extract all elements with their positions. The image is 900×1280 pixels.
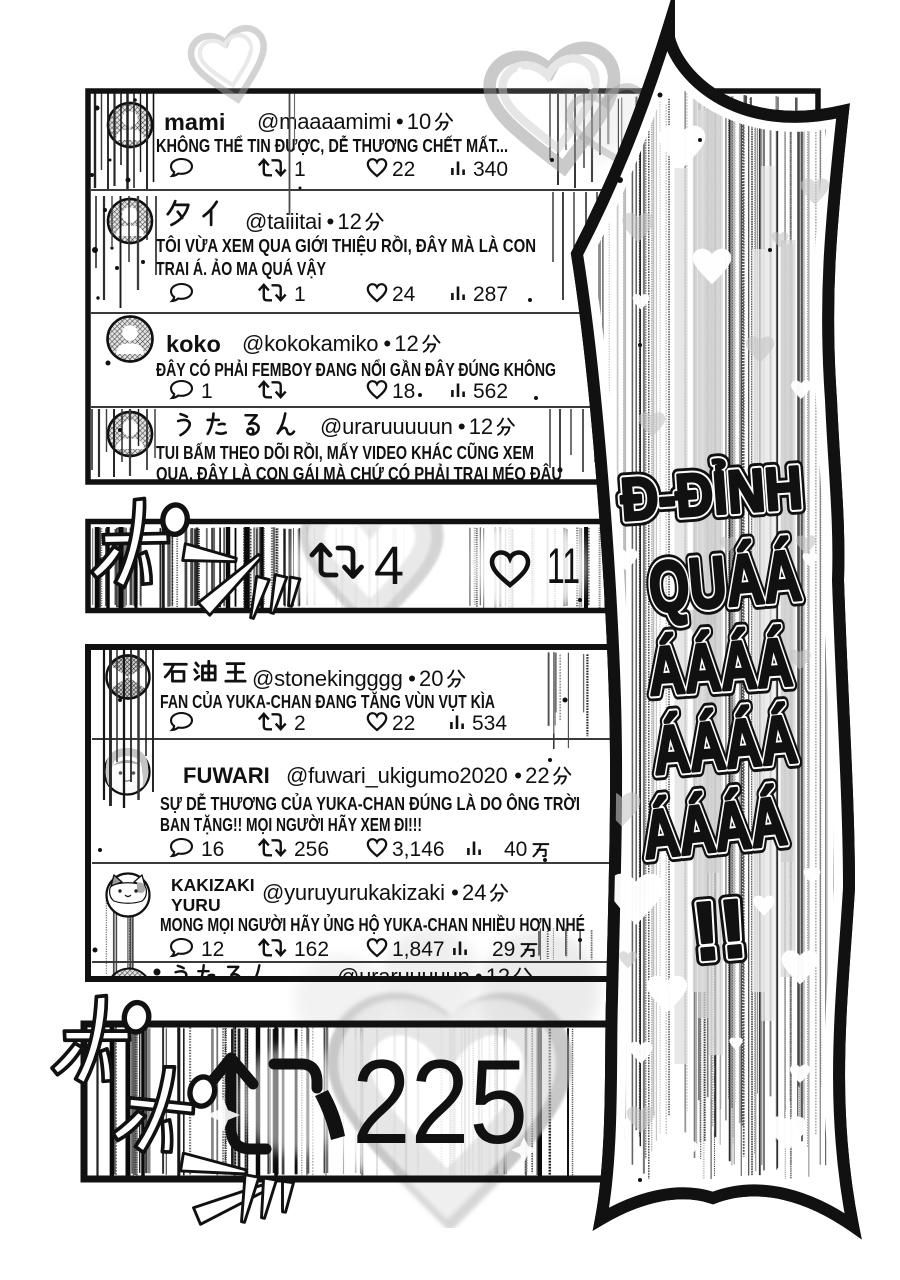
svg-text:ĐÂY CÓ PHẢI FEMBOY ĐANG NỔI GẦ: ĐÂY CÓ PHẢI FEMBOY ĐANG NỔI GẦN ĐÂY ĐÚNG…	[156, 359, 556, 380]
svg-text:TUI BẤM THEO DÕI RỒI, MẤY VIDE: TUI BẤM THEO DÕI RỒI, MẤY VIDEO KHÁC CŨN…	[156, 442, 534, 463]
svg-text:18: 18	[392, 380, 415, 403]
svg-text:1: 1	[201, 380, 213, 403]
svg-text:QUÁÁ: QUÁÁ	[646, 536, 804, 629]
svg-text:@stonekingggg: @stonekingggg	[252, 666, 403, 691]
svg-text:3,146: 3,146	[392, 838, 445, 861]
svg-text:SỰ DỄ THƯƠNG CỦA YUKA-CHAN ĐÚN: SỰ DỄ THƯƠNG CỦA YUKA-CHAN ĐÚNG LÀ DO ÔN…	[160, 793, 580, 814]
svg-text:287: 287	[473, 283, 508, 306]
svg-text:40: 40	[504, 838, 527, 861]
svg-text:TRAI Á. ẢO MA QUÁ VẬY: TRAI Á. ẢO MA QUÁ VẬY	[156, 258, 327, 279]
svg-text:@taiiitai: @taiiitai	[245, 209, 322, 234]
svg-text:225: 225	[352, 1035, 528, 1169]
svg-text:ÁÁÁÁ: ÁÁÁÁ	[639, 783, 790, 874]
svg-text:FUWARI: FUWARI	[183, 763, 270, 788]
svg-text:562: 562	[473, 380, 508, 403]
svg-text:@maaaamimi: @maaaamimi	[257, 109, 391, 134]
svg-text:Đ-ĐỈNH: Đ-ĐỈNH	[618, 454, 804, 534]
svg-text:2: 2	[294, 712, 306, 735]
svg-text:10: 10	[407, 109, 431, 134]
svg-text:22: 22	[392, 712, 415, 735]
svg-text:@yuruyurukakizaki: @yuruyurukakizaki	[262, 880, 445, 905]
svg-text:534: 534	[472, 712, 507, 735]
svg-text:12: 12	[469, 414, 493, 439]
svg-text:KHÔNG THỂ TIN ĐƯỢC, DỄ THƯƠNG: KHÔNG THỂ TIN ĐƯỢC, DỄ THƯƠNG CHẾT MẤT..…	[156, 135, 508, 156]
svg-text:12: 12	[201, 938, 224, 961]
svg-text:1: 1	[294, 158, 306, 181]
svg-text:@fuwari_ukigumo2020: @fuwari_ukigumo2020	[286, 763, 508, 788]
svg-text:@uraruuuuun: @uraruuuuun	[320, 414, 453, 439]
svg-text:22: 22	[392, 158, 415, 181]
svg-text:162: 162	[294, 938, 329, 961]
svg-text:29: 29	[492, 938, 515, 961]
svg-text:11: 11	[547, 538, 580, 594]
svg-text:ÁÁÁÁ: ÁÁÁÁ	[646, 624, 795, 710]
svg-text:FAN CỦA YUKA-CHAN ĐANG TĂNG VÙ: FAN CỦA YUKA-CHAN ĐANG TĂNG VÙN VỤT KÌA	[160, 691, 495, 712]
svg-text:TÔI VỪA XEM QUA GIỚI THIỆU RỒI: TÔI VỪA XEM QUA GIỚI THIỆU RỒI, ĐÂY MÀ L…	[156, 235, 536, 256]
svg-text:16: 16	[201, 838, 224, 861]
svg-text:1: 1	[294, 283, 306, 306]
svg-text:22: 22	[525, 763, 549, 788]
svg-text:KAKIZAKI: KAKIZAKI	[171, 875, 255, 895]
svg-text:256: 256	[294, 838, 329, 861]
svg-text:340: 340	[473, 158, 508, 181]
svg-text:@kokokamiko: @kokokamiko	[242, 331, 378, 356]
svg-text:24: 24	[392, 283, 416, 306]
svg-text:12: 12	[394, 331, 418, 356]
svg-text:YURU: YURU	[171, 895, 221, 915]
svg-text:BAN TẶNG!! MỌI NGƯỜI HÃY XEM Đ: BAN TẶNG!! MỌI NGƯỜI HÃY XEM ĐI!!!	[160, 814, 422, 835]
svg-text:20: 20	[419, 666, 443, 691]
svg-text:MONG MỌI NGƯỜI HÃY ỦNG HỘ YUKA: MONG MỌI NGƯỜI HÃY ỦNG HỘ YUKA-CHAN NHIỀ…	[160, 914, 585, 935]
svg-text:!!: !!	[689, 883, 751, 978]
svg-text:ÁÁÁÁ: ÁÁÁÁ	[650, 701, 800, 789]
svg-text:koko: koko	[166, 331, 221, 357]
svg-text:12: 12	[337, 209, 361, 234]
svg-text:4: 4	[374, 536, 404, 596]
svg-text:24: 24	[462, 880, 486, 905]
svg-text:mami: mami	[164, 109, 225, 135]
svg-text:1,847: 1,847	[392, 938, 445, 961]
